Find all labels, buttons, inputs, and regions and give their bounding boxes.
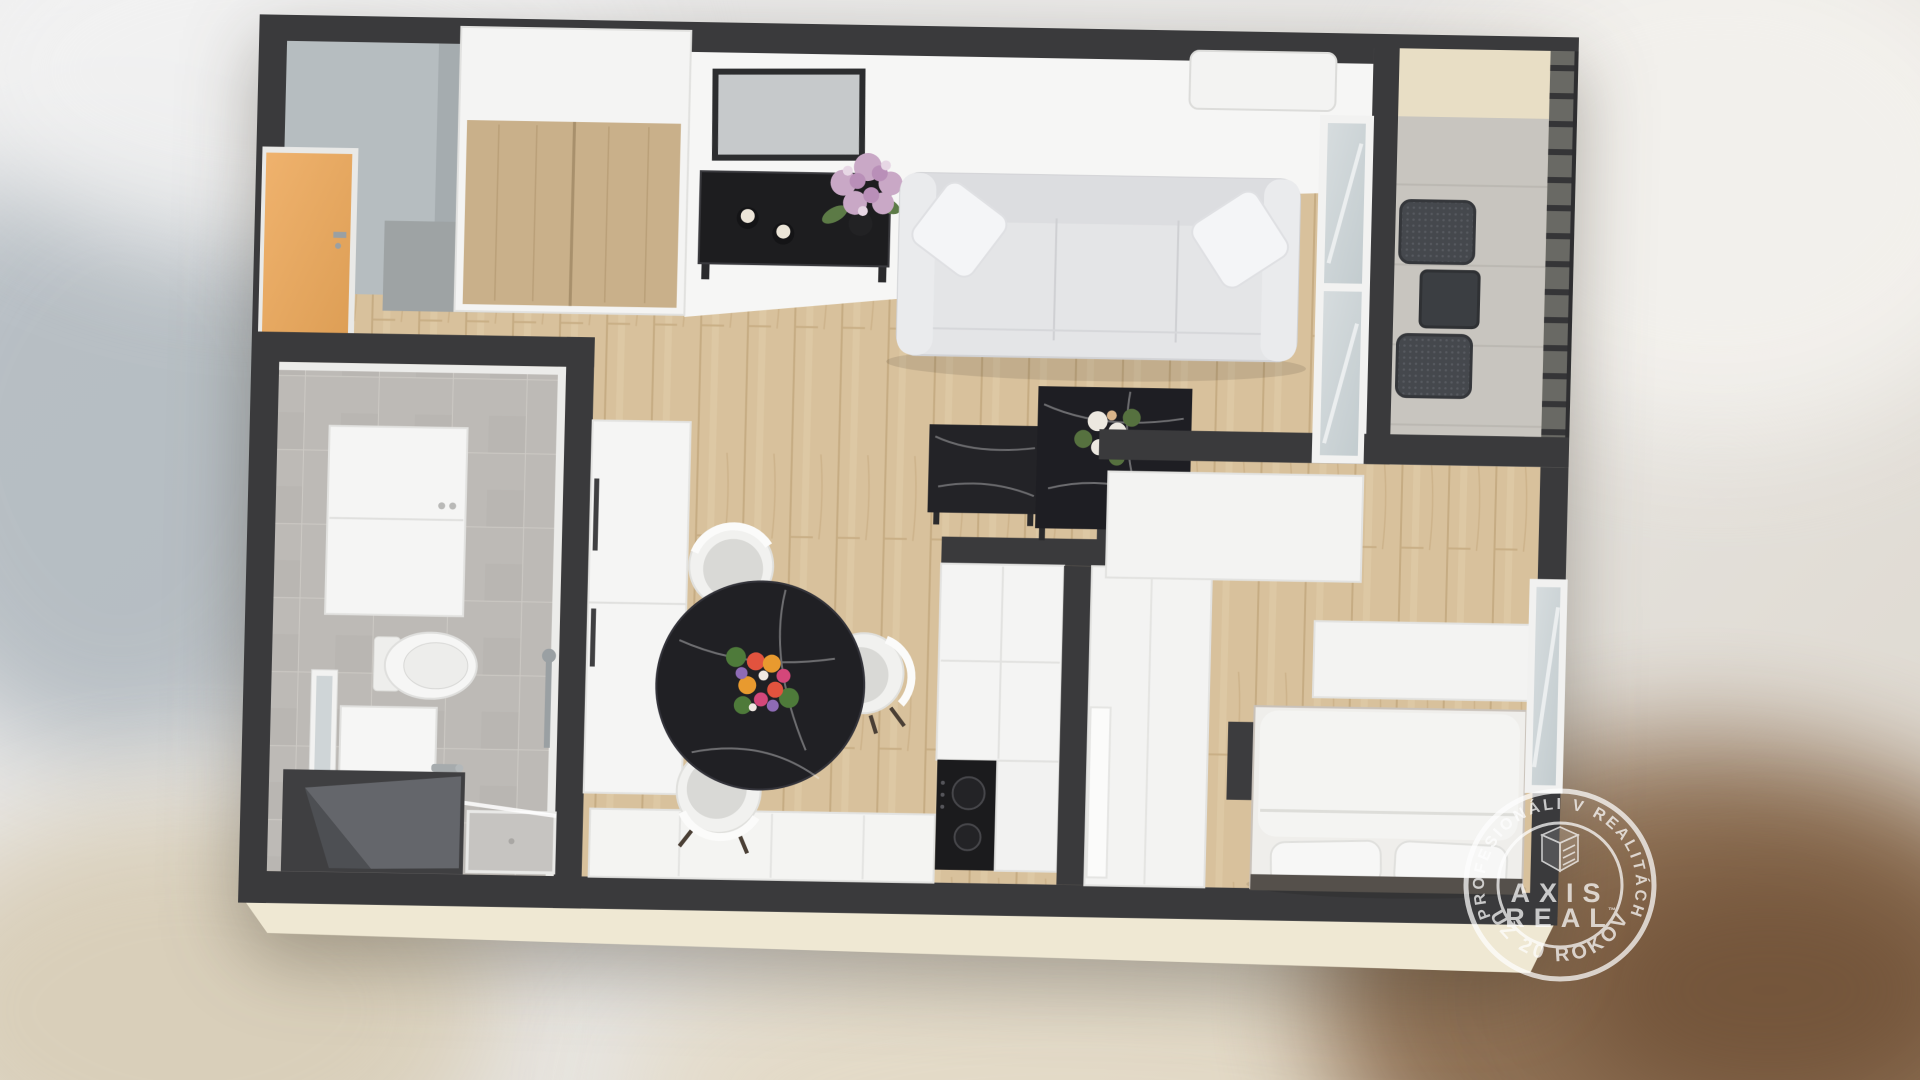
- outdoor-chair: [1396, 334, 1471, 397]
- outdoor-table: [1420, 271, 1479, 328]
- entry-hall: [258, 23, 692, 355]
- bedroom-wardrobe-2: [1313, 621, 1537, 701]
- door-handle-icon: [333, 232, 346, 238]
- balcony-wall-bottom: [1364, 434, 1570, 468]
- toilet: [373, 632, 478, 700]
- entry-door: [258, 146, 359, 350]
- washing-machine-cabinet: [325, 426, 468, 616]
- balcony-door-window: [1312, 115, 1374, 464]
- bedroom-door-leaf: [1087, 707, 1111, 877]
- sofa-arm: [1260, 179, 1300, 362]
- bathroom-mirror: [309, 670, 338, 786]
- stamp-building-icon: [1542, 827, 1578, 871]
- kitchen-back-wall: [941, 537, 1123, 567]
- faucet-icon: [431, 764, 459, 772]
- bathroom: [238, 331, 595, 908]
- wall-radiator: [1189, 51, 1336, 112]
- floorplan-svg: [217, 4, 1640, 989]
- coffee-table-small: [927, 424, 1041, 514]
- burner-icon: [954, 824, 981, 850]
- sofa-arm: [896, 173, 936, 356]
- balcony-cream-wall: [1398, 48, 1551, 119]
- kitchen-counter-bottom: [589, 809, 935, 883]
- stamp-brand-line2: REAL: [1505, 903, 1615, 933]
- burner-icon: [952, 777, 985, 810]
- watermark-stamp: PROFESIONÁLI V REALITÁCH AXIS REAL ™ UŽ …: [1450, 775, 1670, 995]
- nightstand: [1226, 722, 1254, 800]
- bathroom-wall-top: [251, 331, 595, 367]
- bedroom-window: [1525, 579, 1568, 794]
- hall-wardrobe: [454, 27, 691, 315]
- tv: [712, 69, 866, 161]
- sofa: [886, 172, 1311, 384]
- utility-niche: [281, 769, 465, 874]
- kitchen-corner-unit: [995, 761, 1060, 872]
- cooktop: [935, 760, 998, 871]
- bedroom-wardrobe: [1106, 471, 1363, 581]
- floorplan: [217, 4, 1640, 989]
- outdoor-chair: [1400, 200, 1475, 263]
- screenshot-root: PROFESIONÁLI V REALITÁCH AXIS REAL ™ UŽ …: [0, 0, 1920, 1080]
